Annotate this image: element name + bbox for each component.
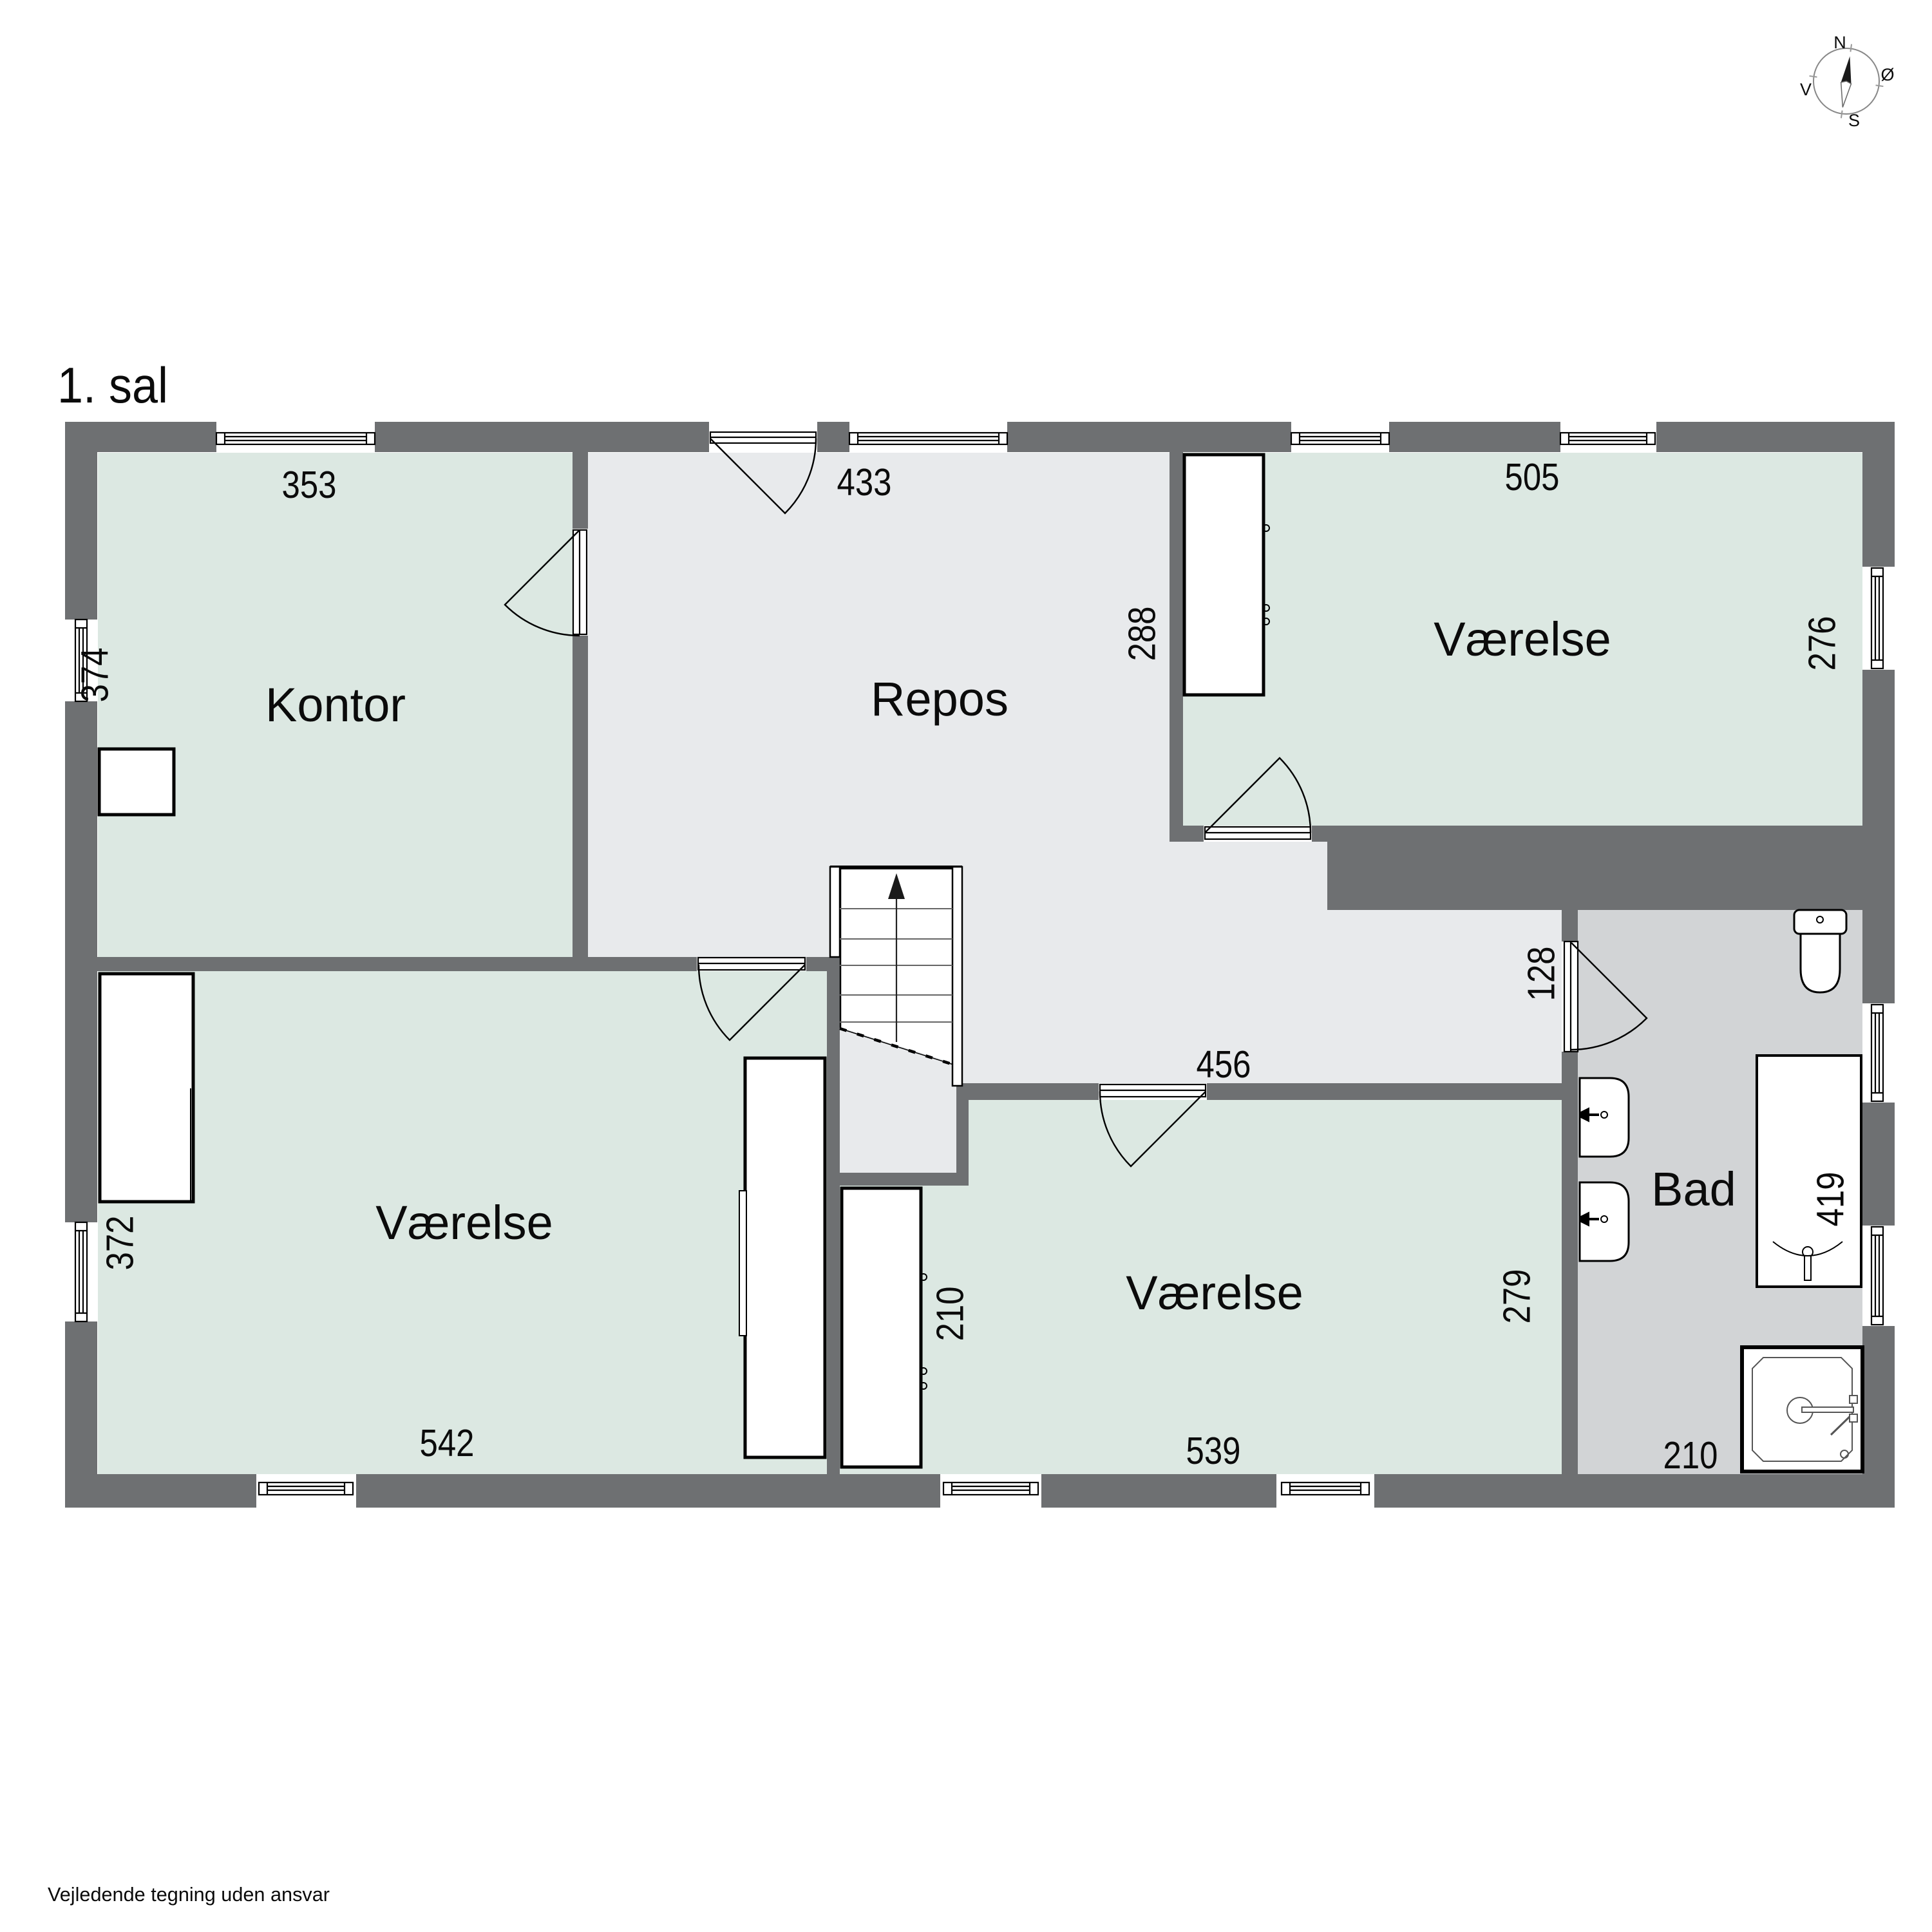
svg-text:353: 353 xyxy=(282,464,337,506)
svg-text:419: 419 xyxy=(1810,1172,1852,1227)
svg-text:456: 456 xyxy=(1197,1043,1251,1086)
svg-text:210: 210 xyxy=(929,1287,972,1341)
svg-text:Ø: Ø xyxy=(1880,65,1894,84)
svg-text:279: 279 xyxy=(1496,1269,1539,1324)
svg-text:505: 505 xyxy=(1505,456,1560,498)
svg-text:Kontor: Kontor xyxy=(265,678,406,732)
svg-text:288: 288 xyxy=(1121,607,1164,661)
svg-text:Repos: Repos xyxy=(871,672,1009,726)
svg-text:Bad: Bad xyxy=(1651,1162,1736,1216)
svg-text:210: 210 xyxy=(1663,1434,1718,1477)
svg-text:374: 374 xyxy=(74,648,117,703)
svg-text:276: 276 xyxy=(1801,616,1844,671)
svg-text:Værelse: Værelse xyxy=(1434,612,1611,666)
svg-text:542: 542 xyxy=(420,1422,475,1464)
svg-text:539: 539 xyxy=(1186,1430,1241,1472)
svg-text:Værelse: Værelse xyxy=(375,1196,553,1249)
svg-text:372: 372 xyxy=(99,1216,142,1271)
svg-text:S: S xyxy=(1848,111,1860,130)
svg-text:Vejledende tegning uden ansvar: Vejledende tegning uden ansvar xyxy=(48,1883,330,1906)
svg-text:433: 433 xyxy=(837,461,892,504)
svg-text:1. sal: 1. sal xyxy=(57,357,168,413)
svg-text:128: 128 xyxy=(1520,947,1563,1001)
svg-text:N: N xyxy=(1833,33,1846,52)
svg-text:V: V xyxy=(1800,80,1812,99)
svg-text:Værelse: Værelse xyxy=(1126,1266,1303,1320)
